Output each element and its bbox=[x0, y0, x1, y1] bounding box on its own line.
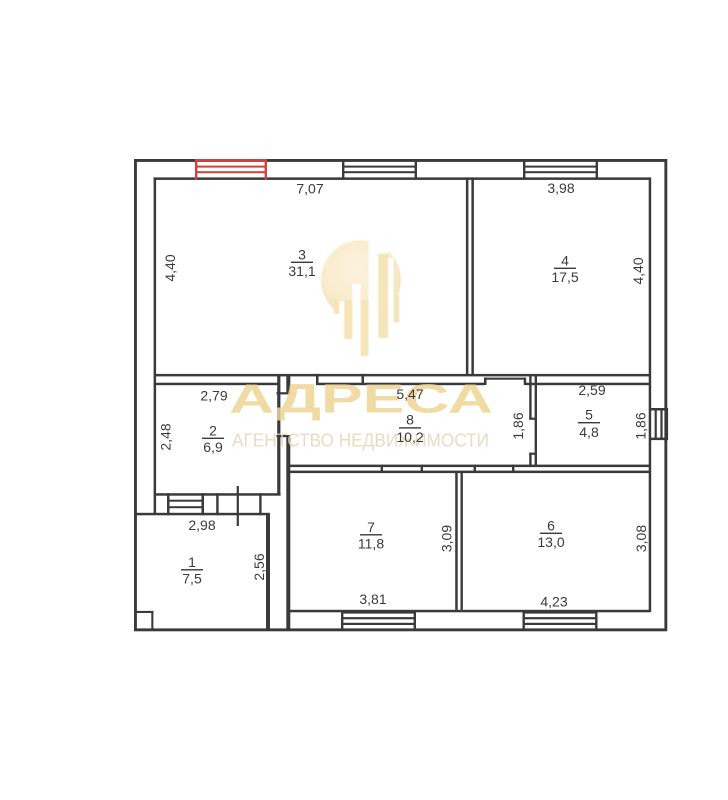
svg-text:10,2: 10,2 bbox=[396, 429, 423, 445]
svg-text:2,79: 2,79 bbox=[200, 388, 227, 404]
svg-text:3: 3 bbox=[298, 247, 306, 263]
svg-text:31,1: 31,1 bbox=[288, 263, 315, 279]
svg-text:1,86: 1,86 bbox=[510, 412, 526, 439]
svg-text:1,86: 1,86 bbox=[633, 412, 649, 439]
svg-text:7,07: 7,07 bbox=[296, 181, 323, 197]
svg-text:2: 2 bbox=[209, 423, 217, 439]
svg-text:6: 6 bbox=[547, 518, 555, 534]
svg-text:3,98: 3,98 bbox=[547, 180, 574, 196]
svg-text:7,5: 7,5 bbox=[182, 571, 202, 587]
svg-text:3,81: 3,81 bbox=[359, 591, 386, 607]
svg-text:4,23: 4,23 bbox=[540, 594, 567, 610]
svg-text:3,08: 3,08 bbox=[633, 525, 649, 552]
svg-text:17,5: 17,5 bbox=[551, 269, 578, 285]
svg-text:4,40: 4,40 bbox=[630, 257, 646, 284]
svg-text:АГЕНТСТВО НЕДВИЖИМОСТИ: АГЕНТСТВО НЕДВИЖИМОСТИ bbox=[232, 431, 489, 451]
svg-text:4: 4 bbox=[561, 253, 569, 269]
svg-text:1: 1 bbox=[188, 554, 196, 570]
svg-text:5,47: 5,47 bbox=[396, 386, 423, 402]
svg-text:2,48: 2,48 bbox=[158, 423, 174, 450]
svg-text:4,40: 4,40 bbox=[162, 254, 178, 281]
svg-text:2,59: 2,59 bbox=[578, 382, 605, 398]
svg-text:АДРЕСА: АДРЕСА bbox=[229, 376, 493, 422]
svg-text:2,56: 2,56 bbox=[251, 553, 267, 580]
svg-text:13,0: 13,0 bbox=[537, 534, 564, 550]
svg-text:4,8: 4,8 bbox=[579, 424, 599, 440]
svg-text:3,09: 3,09 bbox=[439, 525, 455, 552]
svg-text:8: 8 bbox=[406, 412, 414, 428]
svg-text:2,98: 2,98 bbox=[188, 517, 215, 533]
svg-text:6,9: 6,9 bbox=[203, 439, 223, 455]
svg-text:11,8: 11,8 bbox=[358, 536, 384, 552]
svg-text:5: 5 bbox=[585, 407, 593, 423]
svg-text:7: 7 bbox=[367, 519, 375, 535]
